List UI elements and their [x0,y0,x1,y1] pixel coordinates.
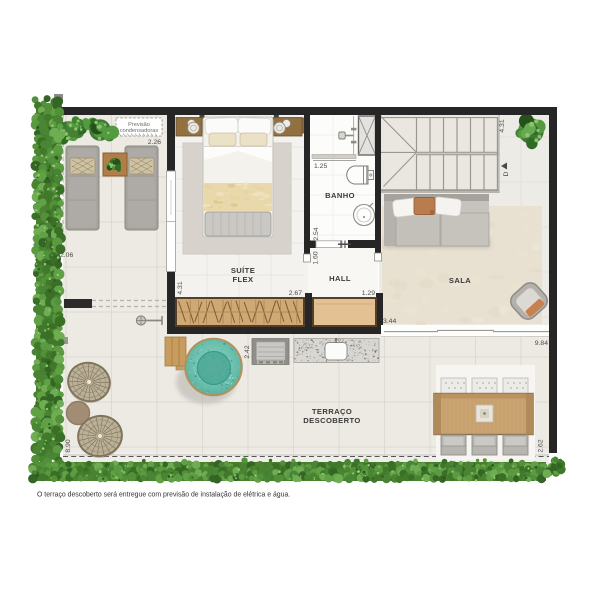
svg-text:O terraço descoberto será entr: O terraço descoberto será entregue com p… [37,492,290,499]
svg-text:4.31: 4.31 [177,281,184,294]
svg-text:2.26: 2.26 [148,139,161,146]
svg-text:2.67: 2.67 [289,290,302,297]
svg-text:8.90: 8.90 [65,439,72,452]
svg-text:BANHO: BANHO [325,191,355,200]
svg-text:9.84: 9.84 [535,340,548,347]
svg-text:TERRAÇO: TERRAÇO [312,407,352,416]
svg-text:3.44: 3.44 [383,318,396,325]
svg-text:1.25: 1.25 [314,163,327,170]
svg-text:DESCOBERTO: DESCOBERTO [303,416,360,425]
svg-text:2.62: 2.62 [538,439,545,452]
svg-text:1.60: 1.60 [313,251,320,264]
svg-text:2.42: 2.42 [244,345,251,358]
svg-text:FLEX: FLEX [232,275,253,284]
svg-text:SUÍTE: SUÍTE [231,266,255,275]
svg-text:condensadoras: condensadoras [120,128,158,134]
svg-text:4.31: 4.31 [499,119,506,132]
svg-text:SALA: SALA [449,276,471,285]
svg-text:D: D [503,171,510,176]
svg-text:HALL: HALL [329,274,351,283]
svg-text:1.29: 1.29 [362,290,375,297]
svg-text:2.54: 2.54 [313,227,320,240]
